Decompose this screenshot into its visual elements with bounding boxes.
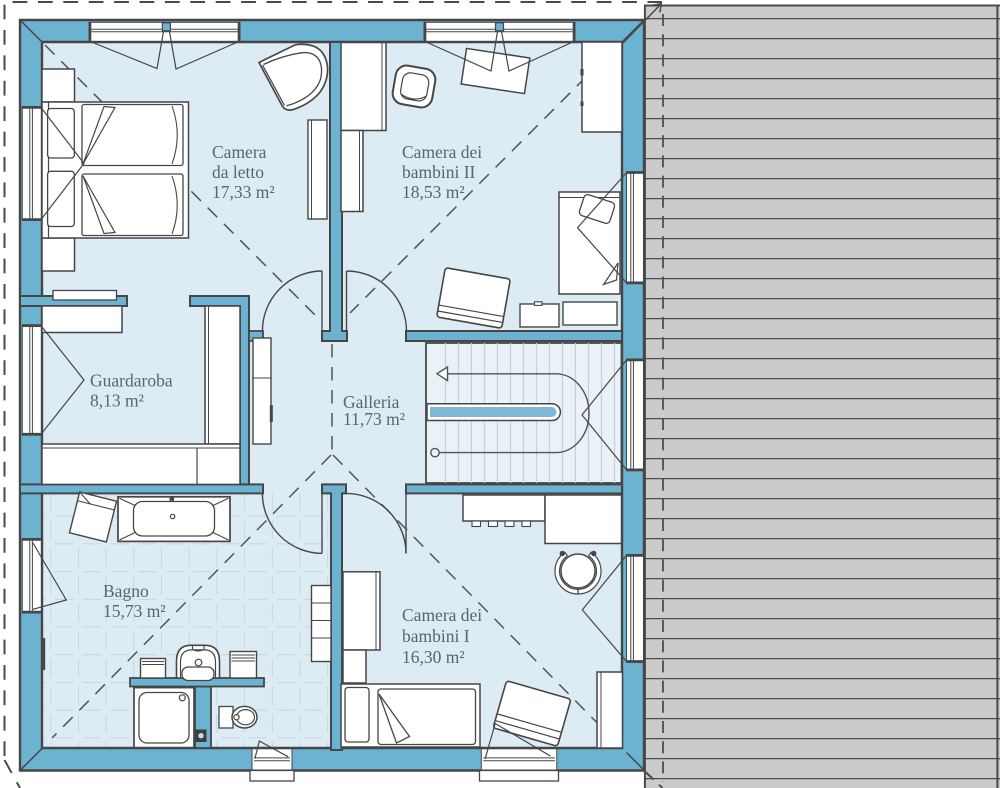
svg-text:Galleria11,73 m²: Galleria11,73 m²: [343, 392, 405, 429]
